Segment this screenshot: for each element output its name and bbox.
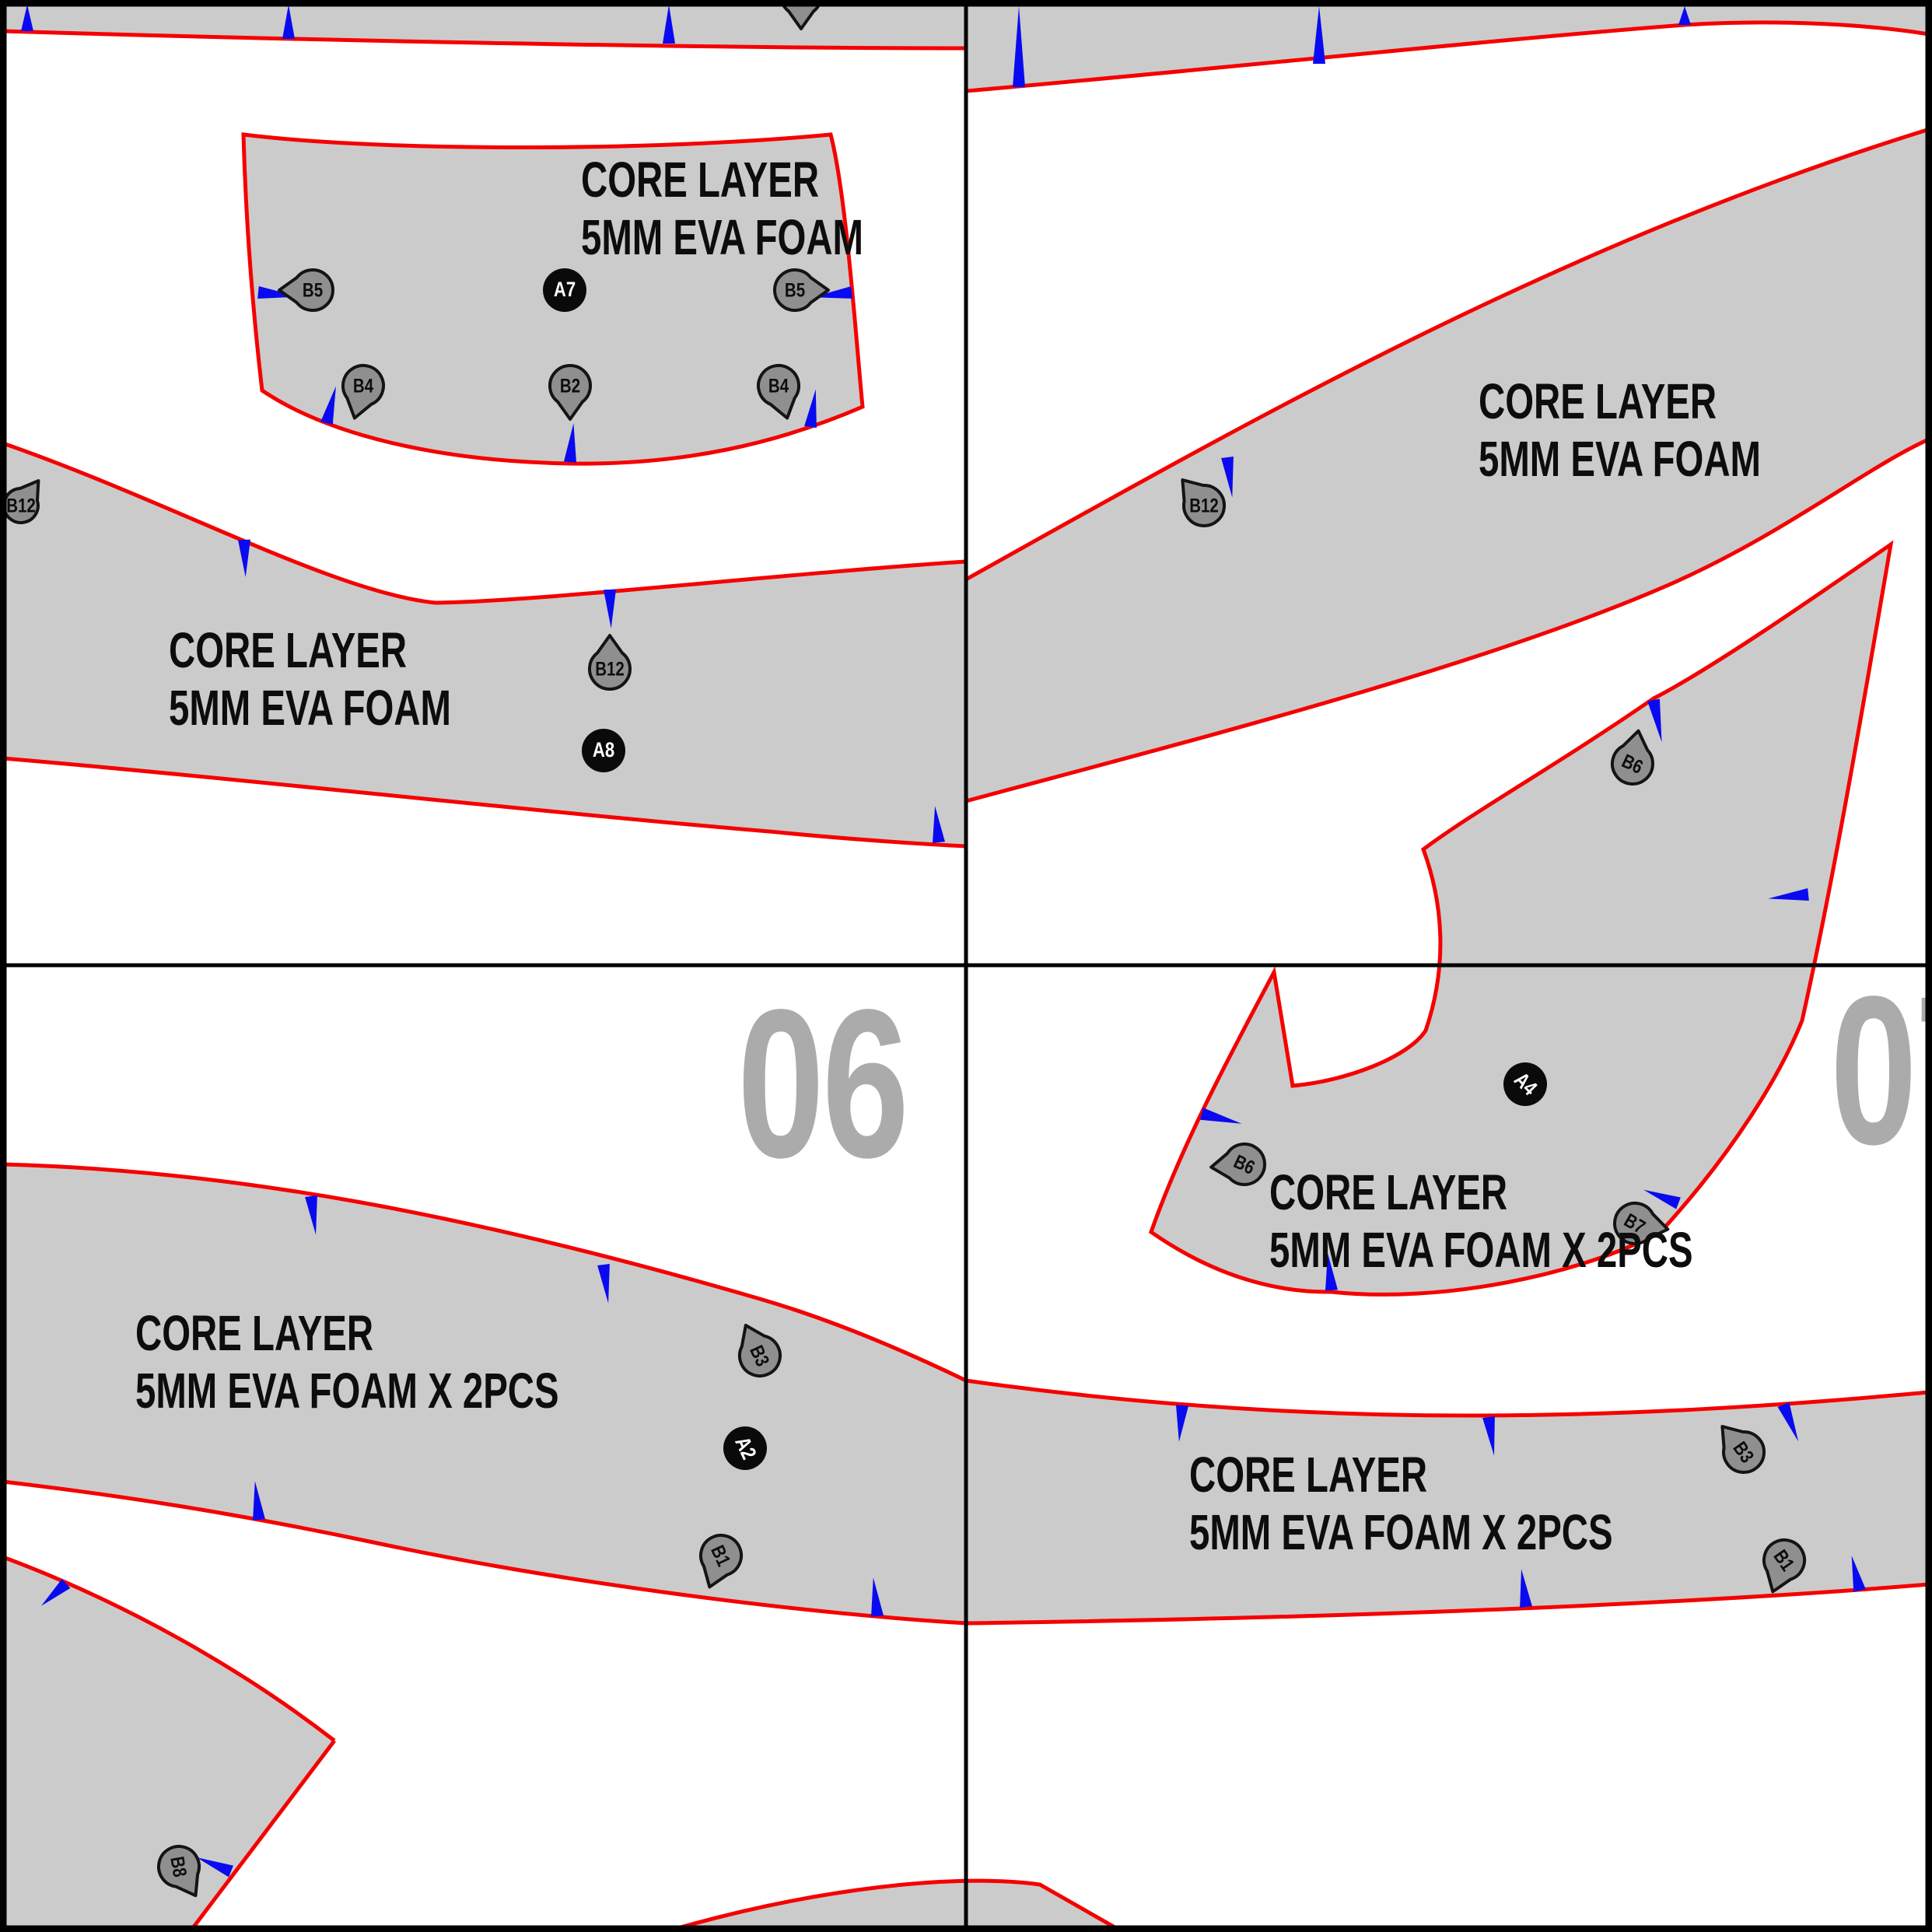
marker-id-text: B5 <box>785 279 805 301</box>
label-band-ll-line2: 5MM EVA FOAM X 2PCS <box>135 1363 559 1419</box>
marker-id-text: B12 <box>1189 495 1219 516</box>
label-band-lr-line1: CORE LAYER <box>1189 1447 1427 1503</box>
marker-id-text: A7 <box>554 278 576 302</box>
dot-marker-A7: A7 <box>543 268 586 312</box>
label-crown-line2: 5MM EVA FOAM <box>581 209 863 265</box>
label-crown-line1: CORE LAYER <box>581 152 819 208</box>
marker-id-text: B12 <box>595 658 625 680</box>
marker-id-text: B2 <box>560 375 580 397</box>
marker-id-text: B5 <box>303 279 323 301</box>
label-band-ul-line1: CORE LAYER <box>169 622 407 678</box>
page-number-06: 06 <box>737 964 907 1202</box>
dot-marker-A4: A4 <box>1503 1062 1547 1106</box>
marker-id-text: B4 <box>353 375 373 397</box>
label-band-ur-line1: CORE LAYER <box>1479 373 1717 429</box>
dot-marker-A8: A8 <box>582 729 625 772</box>
marker-id-text: B12 <box>6 495 36 516</box>
label-band-lr-line2: 5MM EVA FOAM X 2PCS <box>1189 1504 1613 1560</box>
dot-marker-A2: A2 <box>723 1426 767 1470</box>
marker-id-text: B4 <box>768 375 789 397</box>
marker-id-text: B8 <box>166 1855 192 1879</box>
label-arrow-line1: CORE LAYER <box>1269 1164 1507 1220</box>
label-band-ur-line2: 5MM EVA FOAM <box>1479 431 1761 487</box>
marker-id-text: A8 <box>593 739 614 762</box>
label-band-ll-line1: CORE LAYER <box>135 1305 373 1361</box>
label-arrow-line2: 5MM EVA FOAM X 2PCS <box>1269 1222 1693 1278</box>
pattern-sheet: 06 07 B5A7B5B4B2B4B12B12A8B12B6A4B6B7B3A… <box>0 0 1932 1932</box>
label-band-ul-line2: 5MM EVA FOAM <box>169 680 451 736</box>
page-number-07: 07 <box>1830 951 1932 1188</box>
